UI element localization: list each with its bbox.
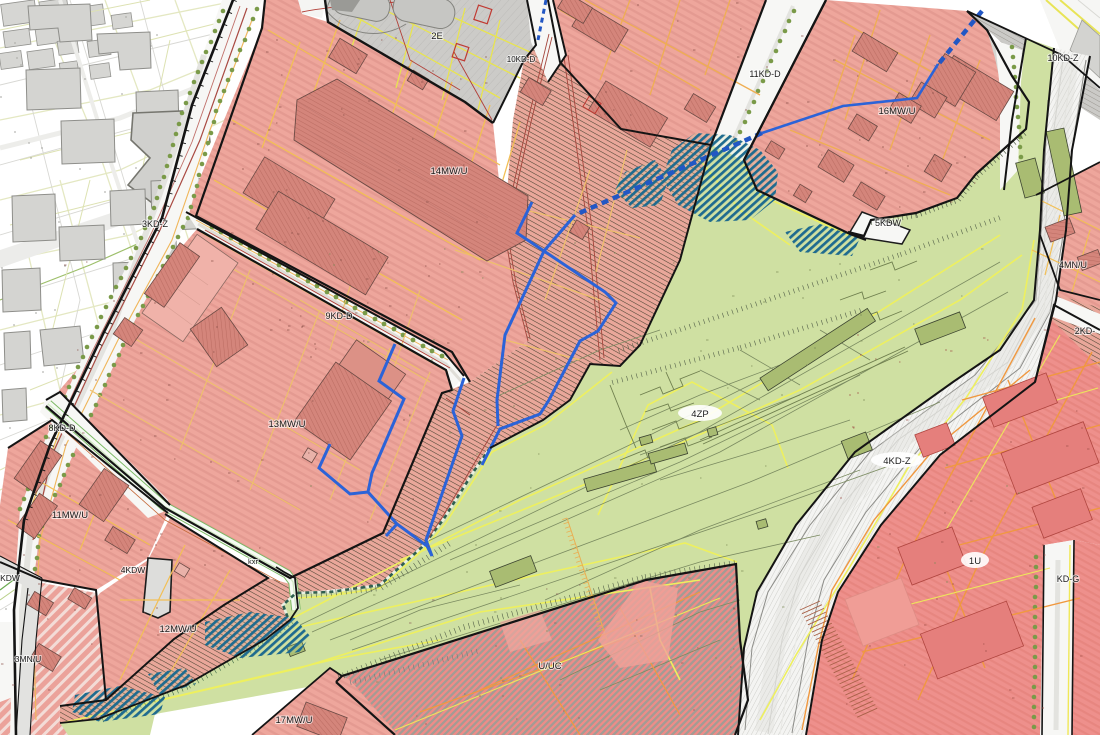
- svg-text:3KD-Z: 3KD-Z: [142, 219, 169, 229]
- svg-text:10KD-Z: 10KD-Z: [1047, 53, 1079, 63]
- svg-text:U/UC: U/UC: [538, 661, 561, 672]
- svg-text:KD-G: KD-G: [1057, 574, 1080, 584]
- svg-text:4KDW: 4KDW: [121, 565, 146, 575]
- svg-text:16MW/U: 16MW/U: [879, 106, 916, 117]
- svg-text:2E: 2E: [431, 31, 443, 42]
- svg-text:12MW/U: 12MW/U: [160, 624, 197, 635]
- svg-text:11KD-D: 11KD-D: [749, 69, 781, 79]
- svg-text:9KD-D: 9KD-D: [325, 311, 353, 321]
- svg-text:3MN/U: 3MN/U: [15, 654, 41, 664]
- svg-text:5KDW: 5KDW: [875, 218, 902, 228]
- svg-text:8KD-D: 8KD-D: [48, 423, 76, 433]
- svg-text:11MW/U: 11MW/U: [52, 510, 88, 521]
- svg-text:4MN/U: 4MN/U: [1059, 260, 1087, 270]
- svg-text:4KD-Z: 4KD-Z: [883, 456, 911, 467]
- svg-text:KDW: KDW: [0, 573, 20, 583]
- svg-text:13MW/U: 13MW/U: [269, 419, 306, 430]
- svg-text:14MW/U: 14MW/U: [431, 166, 468, 177]
- svg-text:17MW/U: 17MW/U: [276, 715, 313, 726]
- svg-text:2KD-: 2KD-: [1075, 326, 1096, 336]
- svg-text:10KD-D: 10KD-D: [507, 55, 536, 64]
- svg-text:1U: 1U: [969, 556, 981, 567]
- svg-text:4ZP: 4ZP: [691, 409, 708, 420]
- svg-text:kxr: kxr: [248, 557, 259, 566]
